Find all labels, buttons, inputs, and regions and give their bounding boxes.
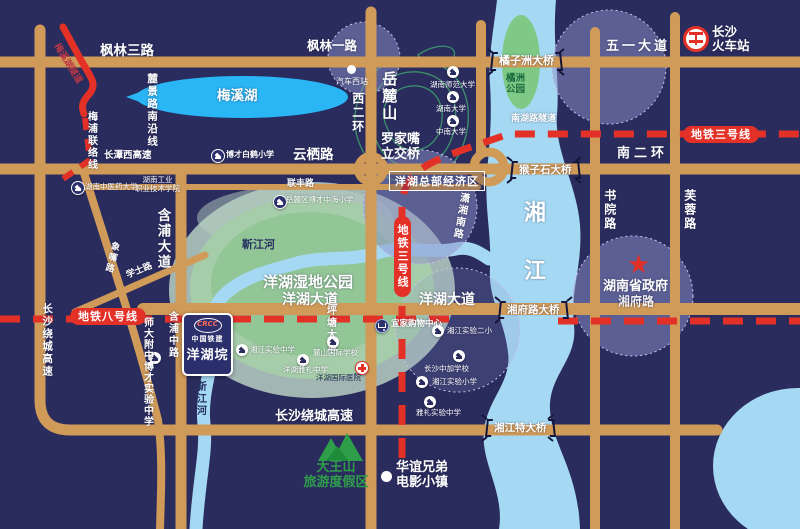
poi-label-lushan-intl: 麓山国际学校 (313, 349, 358, 358)
road-label-furong: 芙蓉路 (682, 189, 696, 231)
interchange-label-line2: 立交桥 (381, 148, 420, 163)
lake-label-meixi: 梅溪湖 (217, 89, 258, 105)
river-label-jiang: 江 (524, 259, 546, 284)
road-label-raocheng-west: 长沙绕城高速 (41, 303, 53, 378)
bridge-label-xiangjiang-special: 湘江特大桥 (492, 422, 549, 434)
university-pin-icon (447, 115, 459, 127)
shopping-cart-pin-icon (375, 319, 389, 333)
area-label-yanghu-cbd: 洋湖总部经济区 (389, 171, 485, 191)
road-label-wuyi: 五一大道 (606, 40, 670, 55)
school-pin-icon (327, 336, 339, 348)
area-label-dawangshan-line2: 旅游度假区 (303, 476, 369, 491)
river-label-xiang: 湘 (524, 201, 546, 226)
road-label-hanpu-mid: 含浦中路 (166, 311, 178, 359)
area-label-huayi-line1: 华谊兄弟 (396, 461, 448, 476)
area-label-gov-road: 湘府路 (618, 295, 654, 309)
project-logo-card: CRCC 中国铁建 洋湖垸 (182, 313, 233, 376)
road-label-nanhu-tunnel: 南湖路隧道 (511, 114, 556, 124)
school-pin-icon (211, 149, 225, 163)
university-pin-icon (71, 181, 85, 195)
area-label-provincial-gov: 湖南省政府 (603, 280, 668, 295)
railway-logo-icon (683, 26, 709, 52)
metro-line8-badge: 地铁八号线 (70, 308, 146, 325)
poi-label-xiangjiang-exp-pri: 湘江实验小学 (432, 378, 477, 387)
station-label-line2: 火车站 (712, 39, 750, 53)
road-label-fenglin3: 枫林三路 (100, 44, 154, 60)
poi-label-hngy-line2: 职业技术学院 (130, 185, 185, 194)
crcc-logo-icon: CRCC (194, 318, 222, 333)
bridge-label-juzizhou: 橘子洲大桥 (497, 55, 556, 68)
island-label-juzhou-line2: 公园 (506, 85, 525, 96)
school-pin-icon (432, 325, 444, 337)
poi-label-hunan-univ: 湖南大学 (436, 105, 466, 114)
road-label-raocheng-south: 长沙绕城高速 (275, 410, 353, 425)
poi-label-qichexizhan: 汽车西站 (336, 77, 368, 86)
interchange-label-line1: 罗家嘴 (381, 133, 420, 148)
poi-label-yanghu-hospital: 洋湖国际医院 (316, 374, 361, 383)
road-label-meipu: 梅浦联络线 (85, 111, 97, 171)
road-label-yanghu-avenue-east: 洋湖大道 (419, 292, 475, 308)
area-label-huayi-line2: 电影小镇 (396, 476, 448, 491)
poi-label-bocai-baihe: 博才白鹤小学 (226, 150, 274, 159)
school-pin-icon (236, 344, 248, 356)
road-label-nanerhuan: 南二环 (617, 147, 668, 162)
school-pin-icon (424, 396, 436, 408)
location-map: 枫林三路 枫林一路 五一大道 南二环 云栖路 联丰路 长潭西高速 南湖路隧道 长… (0, 0, 800, 529)
road-label-shuyuan: 书院路 (602, 189, 616, 231)
university-pin-icon (447, 66, 459, 78)
metro-line3-badge: 地铁三号线 (683, 126, 759, 143)
poi-label-xiangjiang-exp2: 湘江实验二小 (447, 327, 492, 336)
poi-label-shida-fuzhong: 师大附中博才实验中学 (141, 317, 153, 427)
poi-label-xiangjiang-exp-mid: 湘江实验中学 (250, 346, 295, 355)
area-label-yuelushan: 岳麓山 (380, 71, 397, 122)
school-pin-icon (416, 376, 428, 388)
poi-label-zhongjia: 长沙中加学校 (424, 365, 469, 374)
bus-station-dot-icon (347, 65, 356, 74)
project-name-label: 洋湖垸 (184, 344, 231, 363)
road-label-hanpu-avenue: 含浦大道 (154, 208, 170, 270)
bridge-label-houzishi: 猴子石大桥 (517, 164, 574, 176)
poi-label-central-south: 中南大学 (436, 128, 466, 137)
poi-label-bocai-zhonghai: 岳麓区博才中海小学 (286, 196, 354, 205)
road-label-changtanxi: 长潭西高速 (104, 151, 152, 162)
school-pin-icon (453, 350, 465, 362)
road-label-lianfeng: 联丰路 (287, 179, 314, 189)
huayi-dot-icon (381, 471, 392, 482)
area-label-wetland-park: 洋湖湿地公园 (263, 274, 353, 291)
project-brand-label: 中国铁建 (184, 334, 231, 344)
poi-label-hunan-normal: 湖南师范大学 (430, 81, 475, 90)
bridge-label-xiangfu: 湘府路大桥 (505, 304, 562, 316)
metro-line3-badge-vertical: 地铁三号线 (394, 216, 411, 297)
road-label-xierhuan: 西二环 (350, 92, 364, 134)
school-pin-icon (273, 195, 287, 209)
road-label-yunqi: 云栖路 (293, 148, 334, 164)
road-label-fenglin1: 枫林一路 (307, 39, 357, 53)
government-star-icon: ★ (627, 252, 650, 278)
road-label-lujing: 麓景路南沿线 (146, 73, 158, 148)
river-label-jinjiang-v: 靳江河 (194, 381, 206, 417)
area-label-dawangshan-line1: 大王山 (303, 461, 369, 476)
university-pin-icon (447, 91, 459, 103)
poi-label-yali-exp: 雅礼实验中学 (416, 409, 461, 418)
river-label-jinjiang-h: 靳江河 (242, 239, 275, 252)
